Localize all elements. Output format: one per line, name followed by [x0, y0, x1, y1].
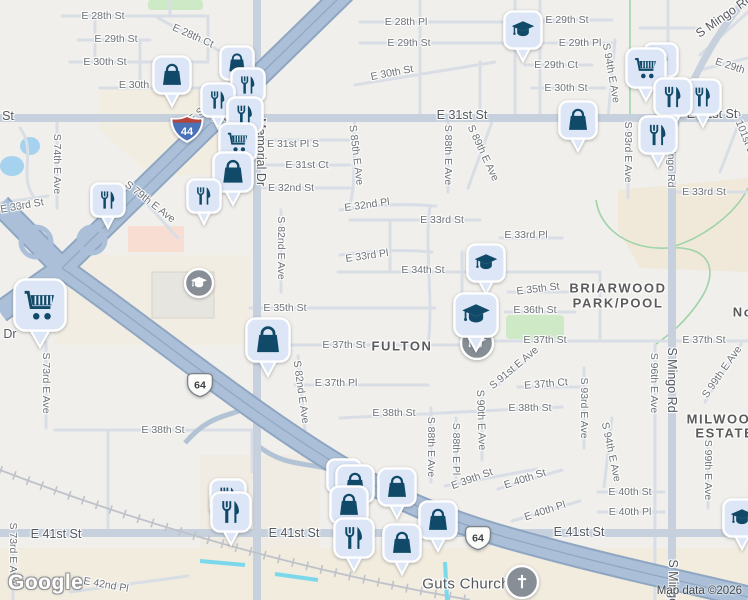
street-label: E 30th	[119, 79, 149, 91]
street-label: S 88th E Ave	[442, 125, 454, 186]
poi-pin-school[interactable]	[503, 10, 543, 63]
neighborhood-label: No	[733, 305, 748, 320]
street-label: E 33rd Pl	[504, 229, 547, 241]
street-label: S 88th E Ave	[425, 417, 437, 478]
street-label: E 31st St	[437, 108, 488, 122]
street-label: E 37th St	[322, 339, 365, 351]
street-label: E 29th St	[387, 37, 430, 49]
poi-pin-restaurant[interactable]	[186, 178, 222, 226]
street-label: E 37th Pl	[315, 377, 358, 389]
google-watermark[interactable]: Google	[8, 571, 83, 595]
street-label: E 34th St	[401, 264, 444, 276]
map-canvas[interactable]: E 28th StE 28th CtE 29th StE 30th StE 30…	[0, 0, 748, 600]
street-label: E 31st Ct	[285, 159, 328, 171]
street-label: E 40th Pl	[609, 506, 652, 518]
street-label: S 90th E Ave	[474, 390, 488, 451]
street-label: S 73rd E Ave	[40, 352, 52, 413]
street-label: E 29th St	[94, 33, 137, 45]
street-label: E 36th St	[513, 304, 556, 316]
svg-text:44: 44	[181, 126, 194, 138]
street-label: S 88th E Pl	[450, 423, 462, 476]
poi-pin-school[interactable]	[453, 292, 499, 353]
route-shield-us: 64	[464, 525, 492, 551]
street-label: E 33rd St	[420, 214, 464, 226]
poi-pin-restaurant[interactable]	[638, 115, 678, 168]
poi-pin-bag[interactable]	[558, 100, 598, 153]
poi-pin-restaurant[interactable]	[90, 182, 126, 230]
poi-pin-bag[interactable]	[418, 500, 458, 553]
street-label: S 99th E Ave	[702, 440, 714, 501]
poi-pin-restaurant[interactable]	[210, 491, 252, 547]
street-label: E 35th St	[263, 302, 306, 314]
svg-text:64: 64	[194, 380, 206, 392]
poi-pin-cart[interactable]	[13, 278, 67, 349]
poi-pin-bag[interactable]	[382, 523, 422, 576]
street-label: S 93rd E Ave	[622, 121, 634, 182]
street-label: S Mingo Rd	[665, 347, 679, 412]
street-label: E 41st St	[31, 527, 82, 541]
poi-pin-bag[interactable]	[377, 467, 417, 520]
neighborhood-label: ESTATES	[695, 426, 748, 441]
street-label: E 32nd St	[268, 182, 314, 194]
street-label: S 96th E Ave	[648, 353, 660, 414]
street-label: E 30th St	[544, 82, 587, 94]
route-shield-interstate: 44	[170, 115, 204, 143]
street-label: E 41st St	[269, 526, 320, 540]
street-label: E 40th St	[608, 486, 651, 498]
street-label: E 29th Pl	[559, 37, 602, 49]
neighborhood-label: BRIARWOOD	[569, 281, 666, 296]
street-label: E 30th St	[83, 56, 126, 68]
street-label: E 38th St	[372, 407, 415, 419]
street-label: E 37th St	[682, 334, 725, 346]
street-label: E 28th St	[81, 10, 124, 22]
street-label: E 38th St	[508, 402, 551, 414]
map-attribution: Map data ©2026	[657, 585, 742, 597]
poi-circle-church[interactable]	[503, 563, 541, 600]
svg-text:64: 64	[472, 533, 484, 545]
street-label: E 28th Pl	[385, 16, 428, 28]
neighborhood-label: MILWOOD	[687, 412, 748, 427]
poi-circle-school[interactable]	[182, 266, 216, 300]
poi-pin-restaurant[interactable]	[333, 517, 375, 573]
poi-pin-school[interactable]	[722, 498, 748, 551]
poi-pin-school[interactable]	[466, 243, 506, 296]
neighborhood-label: PARK/POOL	[573, 296, 664, 311]
street-label: S 74th E Ave	[51, 134, 63, 195]
neighborhood-label: FULTON	[371, 339, 432, 354]
street-label: St	[2, 109, 14, 123]
poi-label: Guts Church	[422, 576, 510, 593]
route-shield-us: 64	[186, 372, 214, 398]
street-label: E 31st Pl S	[267, 138, 319, 150]
street-label: E 38th St	[141, 424, 184, 436]
poi-pin-bag[interactable]	[152, 55, 192, 108]
street-label: S 93rd E Ave	[578, 377, 590, 438]
street-label: E 41st St	[554, 525, 605, 539]
street-label: S 82nd E Ave	[275, 216, 287, 279]
poi-pin-bag[interactable]	[245, 317, 291, 378]
street-label: E 33rd St	[682, 186, 726, 198]
street-label: E 29th St	[545, 14, 588, 26]
street-label: E 37th St	[523, 334, 566, 346]
